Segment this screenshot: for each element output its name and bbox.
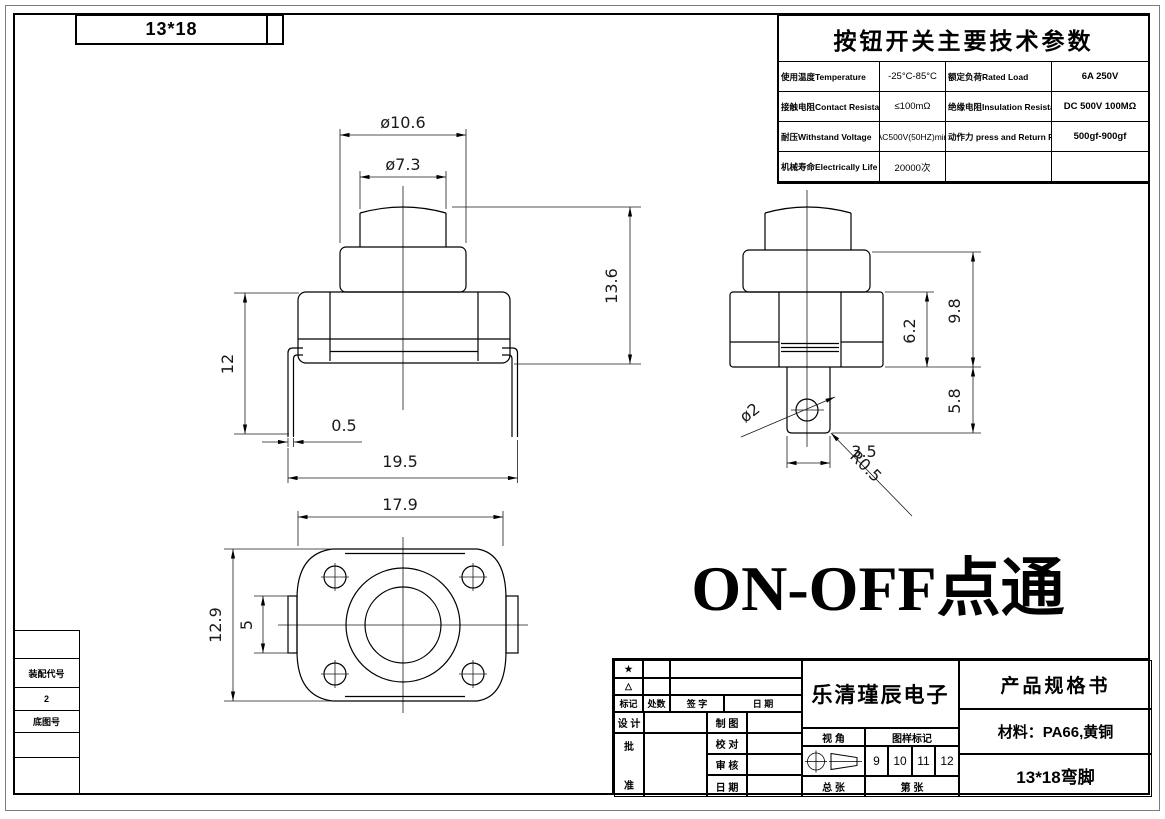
dim-front-total-height: 13.6 [602,268,621,304]
rev-empty-cell [643,660,670,678]
tech-cell-value: -25°C-85°C [880,62,946,92]
design-value-cell [644,712,707,733]
header-mark: 标记 [614,695,643,712]
tech-cell-value: AC500V(50HZ)min [880,122,946,152]
approve-char-bottom: 准 [624,777,634,792]
dim-side-upper-height: 6.2 [900,318,919,343]
tech-cell-value: DC 500V 100MΩ [1052,92,1148,122]
approve-label: 批 准 [614,733,644,797]
view-angle-label: 视 角 [802,728,865,746]
tech-cell-value: 500gf-900gf [1052,122,1148,152]
header-signature: 签 字 [670,695,724,712]
drawing-code: 13*18 [145,19,197,40]
mark-number-cell: 10 [888,746,912,776]
draft-label: 制 图 [707,712,747,733]
rev-empty-cell [643,678,670,695]
circuit-note: ON-OFF点通 [686,528,1070,638]
sheet-number-label: 第 张 [865,776,959,797]
dim-front-pin-span: 19.5 [382,452,418,471]
company-name: 乐清瑾辰电子 [802,660,959,728]
drawing-code-box: 13*18 [75,14,268,45]
draft-value-cell [747,712,802,733]
check-value-cell [747,733,802,754]
tech-cell-value: 6A 250V [1052,62,1148,92]
assembly-code-label: 装配代号 [14,658,79,687]
first-angle-projection-icon [804,748,864,775]
tech-cell-value [1052,152,1148,182]
mark-number-cell: 11 [912,746,935,776]
front-right-leg [502,348,518,437]
tech-cell-value: 20000次 [880,152,946,182]
left-margin-strip: 装配代号 2 底图号 [13,630,80,795]
design-label: 设 计 [614,712,644,733]
audit-label: 审 核 [707,754,747,775]
side-view: ø2 6.2 9.8 5.8 3.5 R0.5 [730,190,981,516]
tech-cell-label: 绝缘电阻Insulation Resistance [946,92,1052,122]
dim-bottom-tab: 5 [237,620,256,630]
tech-cell-label: 接触电阻Contact Resistance [779,92,880,122]
bottom-right-tab [506,596,518,653]
rev-star-cell: ★ [614,660,643,678]
pattern-mark-label: 图样标记 [865,728,959,746]
tech-params-table: 按钮开关主要技术参数 使用温度Temperature -25°C-85°C 额定… [777,14,1150,184]
header-date: 日 期 [724,695,802,712]
dim-front-body-height: 12 [218,354,237,374]
dim-front-btn-dia: ø7.3 [385,155,420,174]
tech-cell-label: 耐压Withstand Voltage [779,122,880,152]
total-sheets-label: 总 张 [802,776,865,797]
dim-bottom-height: 12.9 [206,607,225,643]
strip-empty-cell [14,757,79,794]
dim-front-top-dia: ø10.6 [380,113,425,132]
front-view: ø10.6 ø7.3 13.6 12 0.5 19.5 [218,113,641,483]
tech-cell-value: ≤100mΩ [880,92,946,122]
date-label: 日 期 [707,775,747,797]
tech-cell-label: 动作力 press and Return Force [946,122,1052,152]
tech-cell-label: 额定负荷Rated Load [946,62,1052,92]
base-drawing-label: 底图号 [14,710,79,732]
mark-number-cell: 12 [935,746,959,776]
dim-side-hole-dia: ø2 [736,399,763,426]
tech-table-grid: 使用温度Temperature -25°C-85°C 额定负荷Rated Loa… [779,62,1148,182]
drawing-sheet: ø10.6 ø7.3 13.6 12 0.5 19.5 [0,0,1165,819]
doc-type: 产品规格书 [959,660,1152,709]
product-name: 13*18弯脚 [959,754,1152,797]
side-terminal-pin [787,367,830,433]
approve-char-top: 批 [624,738,634,753]
mark-number-cell: 9 [865,746,888,776]
projection-symbol-cell [802,746,865,776]
strip-empty-cell [14,732,79,757]
dim-bottom-width: 17.9 [382,495,418,514]
title-block-divider [801,660,803,793]
bottom-view: 17.9 12.9 5 [206,495,528,713]
assembly-code-value: 2 [14,687,79,710]
dim-front-leg-thickness: 0.5 [331,416,356,435]
title-block: ★ △ 标记 处数 签 字 日 期 设 计 制 图 批 准 校 对 审 核 日 … [612,658,1150,795]
rev-triangle-cell: △ [614,678,643,695]
rev-empty-cell [670,660,802,678]
bottom-left-tab [288,596,297,653]
dim-side-pin-height: 5.8 [945,388,964,413]
approve-value-cell [644,733,707,797]
rev-empty-cell [670,678,802,695]
title-block-divider [958,660,960,793]
audit-value-cell [747,754,802,775]
material-spec: 材料：PA66,黄铜 [959,709,1152,754]
date-value-cell [747,775,802,797]
tech-cell-label: 使用温度Temperature [779,62,880,92]
drawing-code-box-extension [266,14,284,45]
dim-side-base-height: 9.8 [945,298,964,323]
tech-cell-label: 机械寿命Electrically Life [779,152,880,182]
tech-cell-label [946,152,1052,182]
strip-empty-cell [14,630,79,658]
header-count: 处数 [643,695,670,712]
tech-table-title: 按钮开关主要技术参数 [779,16,1148,62]
check-label: 校 对 [707,733,747,754]
